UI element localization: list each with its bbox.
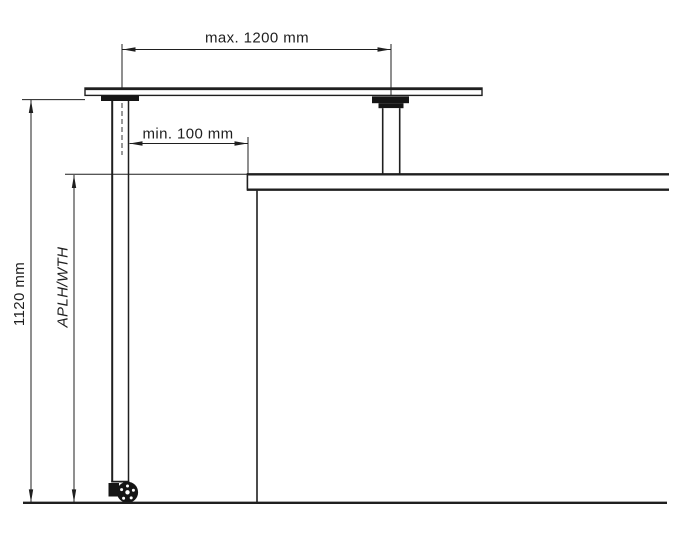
caster-bolt xyxy=(122,497,125,500)
support-pedestal xyxy=(372,96,409,174)
arrowhead-left xyxy=(130,141,143,145)
column-mounting-plate xyxy=(101,95,139,101)
dimension-label-max-width: max. 1200 mm xyxy=(205,30,309,47)
pedestal-flange-upper xyxy=(372,96,409,103)
arrowhead-down xyxy=(72,489,76,502)
worktop-assembly xyxy=(85,88,483,503)
dimension-min-clearance: min. 100 mm xyxy=(130,126,249,175)
arrowhead-up xyxy=(72,175,76,188)
pedestal-body xyxy=(383,108,399,174)
pedestal-flange-lower xyxy=(379,103,404,108)
technical-drawing-canvas: max. 1200 mm min. 100 mm 1120 mm APLH/WT… xyxy=(0,0,698,533)
caster-bolt xyxy=(126,485,129,488)
left-column xyxy=(111,101,129,482)
caster-hub xyxy=(125,490,129,494)
dimension-label-min-clearance: min. 100 mm xyxy=(142,126,233,143)
dimension-worktop-height: APLH/WTH xyxy=(55,174,248,502)
left-column-body xyxy=(113,101,129,481)
arrowhead-right xyxy=(378,47,391,51)
arrowhead-left xyxy=(123,47,136,51)
dimension-label-overall-height: 1120 mm xyxy=(11,262,28,326)
caster-bolt xyxy=(130,496,133,499)
dimension-label-worktop-height: APLH/WTH xyxy=(55,247,72,329)
arrowhead-down xyxy=(29,489,33,502)
arrowhead-right xyxy=(235,141,248,145)
dimension-max-width: max. 1200 mm xyxy=(122,30,391,97)
caster-wheel xyxy=(109,482,139,503)
arrowhead-up xyxy=(29,100,33,113)
counter xyxy=(247,173,669,502)
caster-bolt xyxy=(120,488,123,491)
caster-bolt xyxy=(132,489,135,492)
dimension-drawing: max. 1200 mm min. 100 mm 1120 mm APLH/WT… xyxy=(0,0,698,533)
